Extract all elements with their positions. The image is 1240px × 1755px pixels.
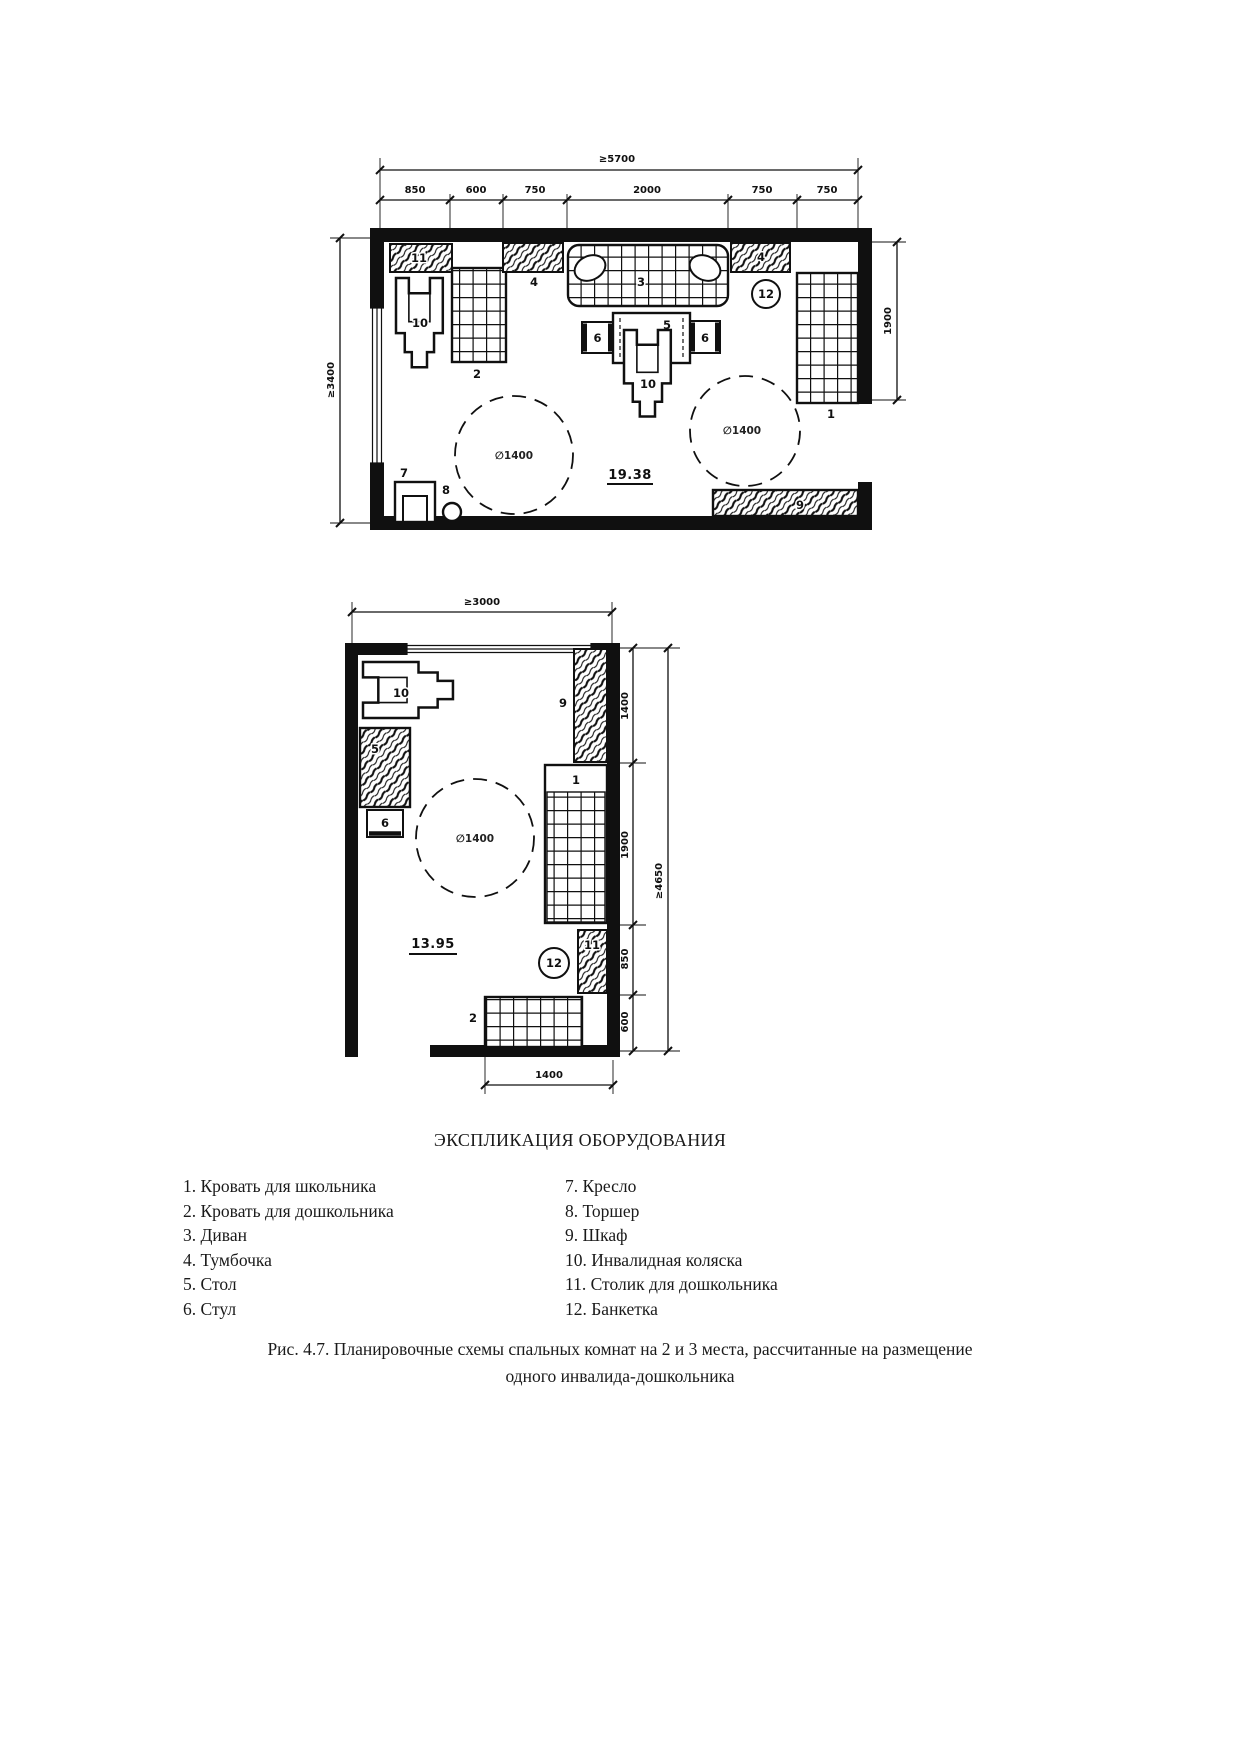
chair-left: 6 bbox=[582, 322, 613, 353]
wheelchair-icon: 10 bbox=[396, 278, 443, 367]
kids-table-11: 11 bbox=[578, 930, 607, 993]
callout-wheelchair: 10 bbox=[393, 686, 409, 700]
callout-nightstand-left: 4 bbox=[530, 275, 538, 289]
callout-sofa: 3 bbox=[637, 275, 645, 289]
room-area-label: 13.95 bbox=[409, 937, 457, 954]
callout-wardrobe: 9 bbox=[559, 696, 567, 710]
callout-bed-preschool: 2 bbox=[473, 367, 481, 381]
kids-table-11: 11 bbox=[390, 244, 452, 272]
dim-seg-850: 850 bbox=[405, 185, 426, 196]
turning-circle-right: ∅1400 bbox=[690, 376, 800, 486]
bed-preschool: 2 bbox=[452, 268, 506, 381]
bench-marker: 12 bbox=[752, 280, 780, 308]
turning-circle-label: ∅1400 bbox=[723, 425, 761, 437]
turning-circle: ∅1400 bbox=[416, 779, 534, 897]
turning-circle-left: ∅1400 bbox=[455, 396, 573, 514]
legend-item: 8. Торшер bbox=[565, 1199, 778, 1224]
dim-seg-2000: 2000 bbox=[633, 185, 661, 196]
nightstand-right: 4 bbox=[731, 243, 790, 272]
dim-right-600: 600 bbox=[620, 1012, 631, 1033]
bed-school: 1 bbox=[797, 273, 858, 421]
callout-wardrobe: 9 bbox=[796, 498, 804, 512]
bed-school: 1 bbox=[545, 765, 607, 923]
callout-kids-table: 11 bbox=[584, 938, 600, 952]
turning-circle-label: ∅1400 bbox=[456, 833, 494, 845]
callout-chair-right: 6 bbox=[701, 331, 709, 345]
legend-item: 10. Инвалидная коляска bbox=[565, 1248, 778, 1273]
plan2-furniture: 10 9 5 6 ∅1400 1 bbox=[360, 649, 607, 1047]
callout-bed-school: 1 bbox=[827, 407, 835, 421]
legend-column-right: 7. Кресло 8. Торшер 9. Шкаф 10. Инвалидн… bbox=[565, 1174, 778, 1322]
legend-item: 2. Кровать для дошкольника bbox=[183, 1199, 394, 1224]
callout-kids-table: 11 bbox=[411, 251, 427, 265]
plan1-furniture: 11 10 2 4 3 4 bbox=[390, 243, 858, 522]
floor-plan-2-bed: ≥3000 1400 1900 850 600 ≥4650 bbox=[290, 530, 710, 1110]
caption-line-1: Рис. 4.7. Планировочные схемы спальных к… bbox=[0, 1336, 1240, 1363]
figure-caption: Рис. 4.7. Планировочные схемы спальных к… bbox=[0, 1336, 1240, 1390]
dim-right-height: 1900 bbox=[883, 307, 894, 335]
svg-text:19.38: 19.38 bbox=[608, 468, 652, 483]
caption-line-2: одного инвалида-дошкольника bbox=[0, 1363, 1240, 1390]
dim-right-1400: 1400 bbox=[620, 692, 631, 720]
callout-bed-school: 1 bbox=[572, 773, 580, 787]
dim-total-width: ≥5700 bbox=[599, 154, 635, 165]
callout-wheelchair-left: 10 bbox=[412, 316, 428, 330]
dim-bottom-width: 1400 bbox=[535, 1070, 563, 1081]
legend-column-left: 1. Кровать для школьника 2. Кровать для … bbox=[183, 1174, 394, 1322]
callout-wheelchair-center: 10 bbox=[640, 377, 656, 391]
legend-item: 6. Стул bbox=[183, 1297, 394, 1322]
dim-right-1900: 1900 bbox=[620, 831, 631, 859]
window bbox=[370, 308, 384, 463]
nightstand-left: 4 bbox=[503, 243, 563, 289]
dim-left-height: ≥3400 bbox=[326, 362, 337, 398]
room-area-label: 19.38 bbox=[607, 468, 653, 484]
legend-item: 9. Шкаф bbox=[565, 1223, 778, 1248]
callout-nightstand-right: 4 bbox=[757, 250, 765, 264]
bench-marker: 12 bbox=[539, 948, 569, 978]
chair: 6 bbox=[367, 810, 403, 837]
legend-item: 3. Диван bbox=[183, 1223, 394, 1248]
wardrobe: 9 bbox=[559, 649, 607, 762]
legend-item: 12. Банкетка bbox=[565, 1297, 778, 1322]
table: 5 bbox=[360, 728, 410, 807]
window bbox=[407, 643, 591, 655]
dim-right-850: 850 bbox=[620, 949, 631, 970]
dim-seg-750a: 750 bbox=[525, 185, 546, 196]
legend-item: 4. Тумбочка bbox=[183, 1248, 394, 1273]
chair-right: 6 bbox=[690, 321, 720, 353]
floor-lamp: 8 bbox=[442, 483, 461, 521]
legend-title: ЭКСПЛИКАЦИЯ ОБОРУДОВАНИЯ bbox=[0, 1130, 1160, 1151]
armchair: 7 bbox=[395, 466, 435, 522]
legend-item: 7. Кресло bbox=[565, 1174, 778, 1199]
callout-chair: 6 bbox=[381, 816, 389, 830]
dim-right-total: ≥4650 bbox=[654, 863, 665, 899]
dim-seg-600: 600 bbox=[466, 185, 487, 196]
sofa: 3 bbox=[568, 245, 728, 306]
floor-plan-3-bed: ≥5700 850 600 750 2000 750 750 bbox=[280, 125, 920, 535]
dim-seg-750b: 750 bbox=[752, 185, 773, 196]
bed-preschool: 2 bbox=[469, 997, 582, 1047]
legend-item: 1. Кровать для школьника bbox=[183, 1174, 394, 1199]
document-page: ≥5700 850 600 750 2000 750 750 bbox=[0, 0, 1240, 1755]
wardrobe: 9 bbox=[713, 490, 858, 516]
turning-circle-label: ∅1400 bbox=[495, 450, 533, 462]
callout-table: 5 bbox=[371, 742, 379, 756]
callout-chair-left: 6 bbox=[593, 331, 601, 345]
legend-item: 11. Столик для дошкольника bbox=[565, 1272, 778, 1297]
callout-bench: 12 bbox=[546, 956, 562, 970]
dim-seg-750c: 750 bbox=[817, 185, 838, 196]
callout-armchair: 7 bbox=[400, 466, 408, 480]
dim-total-width: ≥3000 bbox=[464, 597, 500, 608]
legend-item: 5. Стол bbox=[183, 1272, 394, 1297]
svg-text:13.95: 13.95 bbox=[411, 937, 455, 952]
callout-bed-preschool: 2 bbox=[469, 1011, 477, 1025]
wheelchair-icon: 10 bbox=[363, 662, 453, 718]
callout-floor-lamp: 8 bbox=[442, 483, 450, 497]
callout-bench: 12 bbox=[758, 287, 774, 301]
